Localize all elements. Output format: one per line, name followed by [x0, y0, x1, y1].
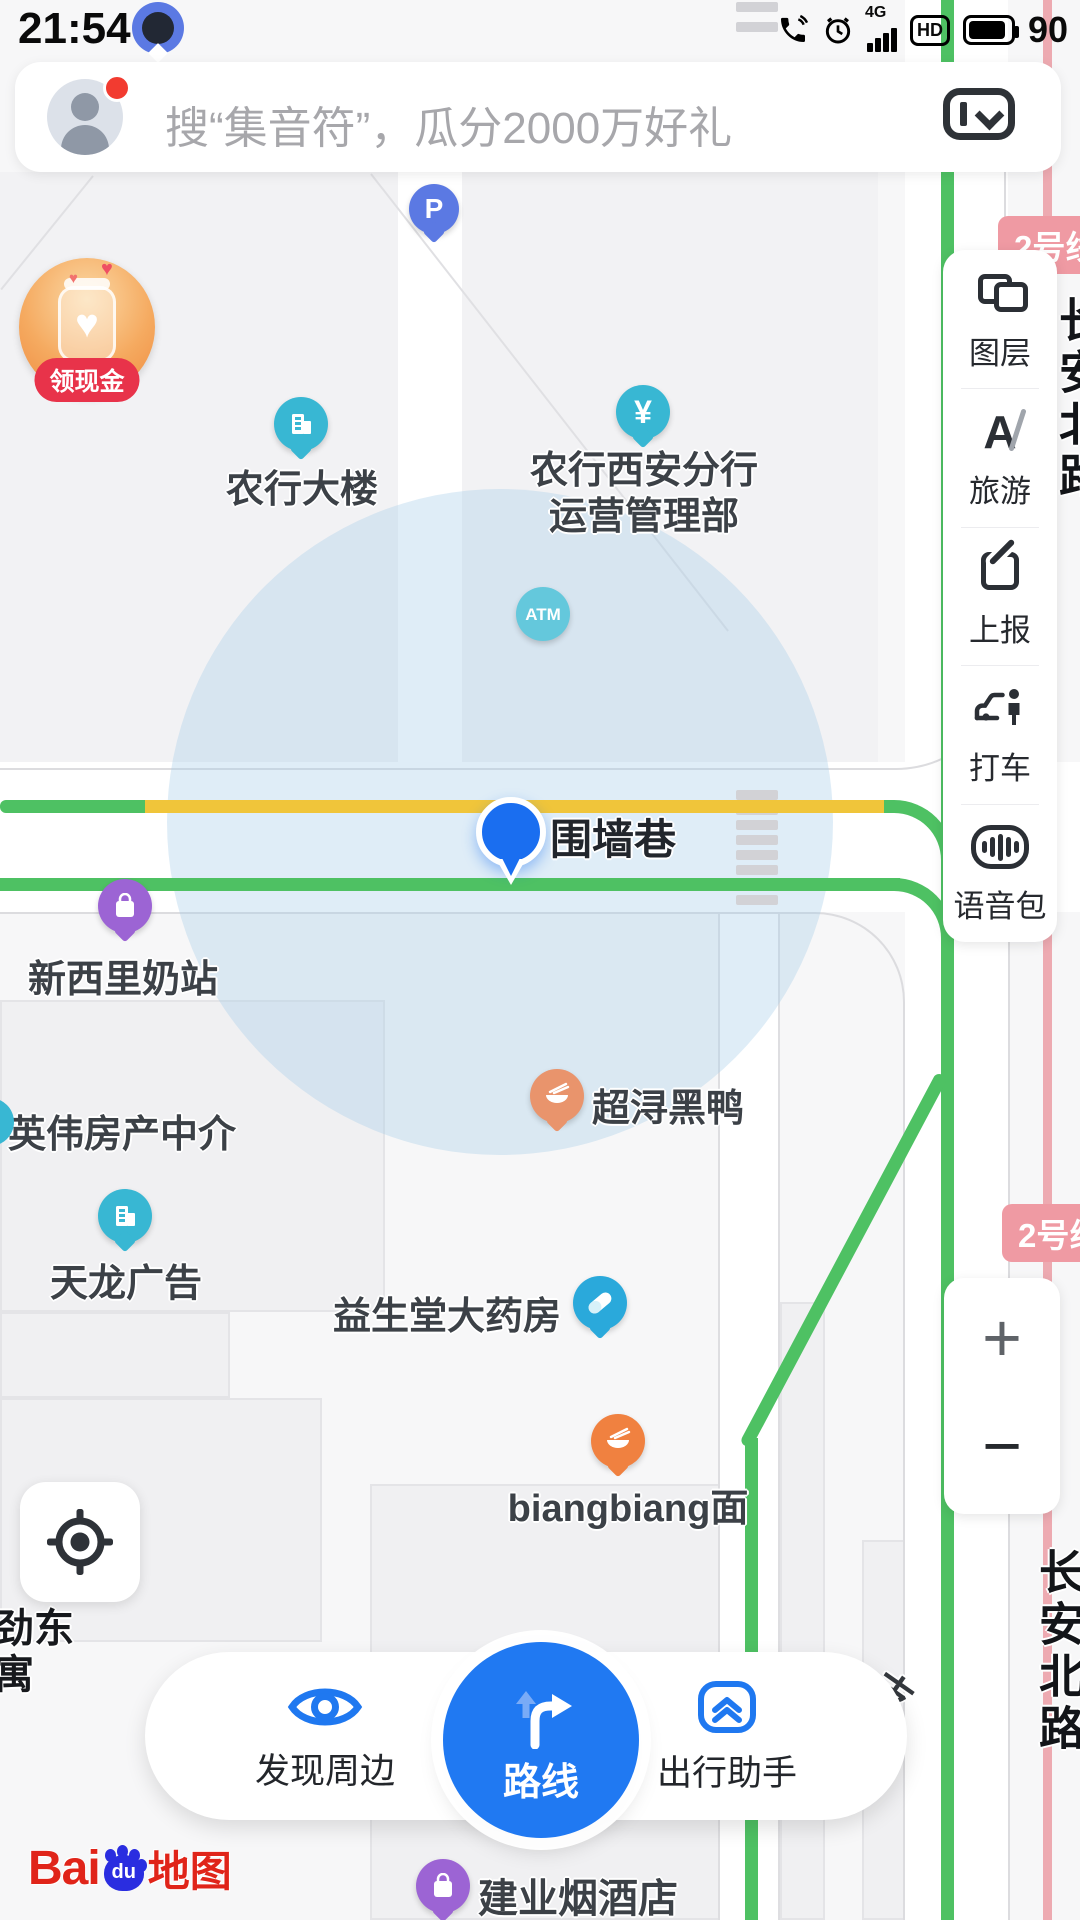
shopping-bag-icon	[113, 893, 137, 919]
toolbar-item-report[interactable]: 上报	[943, 527, 1057, 665]
apartment-line2: 寓	[0, 1653, 34, 1697]
parking-marker[interactable]: P	[409, 184, 459, 234]
noodle-shop-marker[interactable]	[591, 1414, 645, 1468]
pill-icon	[585, 1288, 615, 1318]
alarm-clock-icon	[822, 14, 854, 46]
route-button[interactable]: 路线	[443, 1642, 639, 1838]
building-icon	[112, 1203, 138, 1229]
current-location-pin[interactable]	[476, 797, 546, 867]
zoom-in-button[interactable]: +	[944, 1304, 1060, 1372]
signal-strength-icon: 4G	[867, 8, 897, 52]
baidu-maps-logo: Bai du 地图	[28, 1838, 232, 1899]
metro-line-badge: 2号线	[1002, 1204, 1080, 1262]
milk-station-marker[interactable]	[98, 879, 152, 933]
report-icon	[972, 543, 1028, 599]
baidu-maps-screen: 2号线 2号线 长安北路 长安北路 支 P 农行大楼 ¥ 农行西安分行 运营管理…	[0, 0, 1080, 1920]
network-type-label: 4G	[865, 4, 886, 22]
battery-percent: 90	[1028, 9, 1068, 51]
hd-voice-icon: HD	[910, 15, 950, 46]
battery-icon	[963, 15, 1015, 45]
travel-assistant-label: 出行助手	[657, 1745, 797, 1796]
atm-icon: ATM	[525, 606, 561, 623]
crosswalk-dash	[736, 835, 778, 845]
toolbar-item-layers[interactable]: 图层	[943, 250, 1057, 388]
poi-label-line2: 运营管理部	[549, 496, 739, 538]
call-audio-icon	[777, 14, 809, 46]
locate-me-button[interactable]	[20, 1482, 140, 1602]
map-toolbar: 图层 A 旅游 上报 打车	[943, 250, 1057, 942]
baidu-paw-icon: du	[102, 1847, 146, 1891]
food-bowl-icon	[542, 1082, 572, 1110]
current-road-label: 围墙巷	[550, 806, 676, 867]
road-name-changan-bottom: 长安北路	[1026, 1548, 1080, 1920]
toolbar-label: 打车	[969, 743, 1031, 788]
poi-label[interactable]: 天龙广告	[50, 1252, 202, 1307]
crosswalk-dash	[736, 790, 778, 800]
taxi-icon	[971, 681, 1029, 737]
discover-nearby-button[interactable]: 发现周边	[205, 1652, 445, 1820]
poi-label-apartment: 劲东 寓	[0, 1606, 74, 1698]
pharmacy-marker[interactable]	[573, 1276, 627, 1330]
assistant-icon	[696, 1677, 758, 1737]
duck-shop-marker[interactable]	[530, 1069, 584, 1123]
toolbar-item-travel[interactable]: A 旅游	[943, 388, 1057, 526]
logo-du: du	[111, 1861, 135, 1884]
apartment-line1: 劲东	[0, 1607, 74, 1651]
building-icon	[288, 411, 314, 437]
poi-label[interactable]: 益生堂大药房	[333, 1285, 561, 1340]
zoom-controls: + −	[944, 1278, 1060, 1514]
poi-label[interactable]: biangbiang面	[508, 1477, 749, 1532]
layers-icon	[978, 266, 1022, 322]
bank-branch-marker[interactable]: ¥	[616, 385, 670, 439]
voice-pack-icon	[971, 819, 1029, 875]
toolbar-label: 上报	[969, 605, 1031, 650]
route-label: 路线	[503, 1751, 579, 1806]
notification-dot	[103, 74, 131, 102]
poi-label[interactable]: 建业烟酒店	[478, 1866, 678, 1920]
poi-label-line1: 农行西安分行	[530, 450, 758, 492]
toolbar-label: 旅游	[969, 466, 1031, 511]
bank-building-marker[interactable]	[274, 397, 328, 451]
parking-icon: P	[425, 195, 444, 223]
tobacco-shop-marker[interactable]	[416, 1859, 470, 1913]
crosswalk-dash	[736, 850, 778, 860]
search-input[interactable]: 搜“集音符”，瓜分2000万好礼	[165, 92, 732, 156]
poi-label[interactable]: 农行大楼	[226, 458, 378, 513]
toolbar-item-voice-pack[interactable]: 语音包	[943, 804, 1057, 942]
toolbar-item-taxi[interactable]: 打车	[943, 665, 1057, 803]
crosshair-icon	[45, 1507, 115, 1577]
poi-label[interactable]: 农行西安分行 运营管理部	[530, 448, 758, 540]
crosswalk-dash	[736, 895, 778, 905]
eye-icon	[285, 1679, 365, 1735]
status-bar: 21:54 4G HD 90	[0, 0, 1080, 58]
travel-assistant-button[interactable]: 出行助手	[607, 1652, 847, 1820]
poi-label[interactable]: 新西里奶站	[28, 948, 218, 1003]
cash-promo-button[interactable]: ♥♥♥ 领现金	[19, 258, 155, 396]
crosswalk-dash	[736, 865, 778, 875]
promo-badge: 领现金	[34, 358, 139, 402]
zoom-out-button[interactable]: −	[944, 1412, 1060, 1480]
logo-map-word: 地图	[148, 1838, 232, 1899]
route-arrow-icon	[502, 1675, 580, 1749]
logo-bai: Bai	[28, 1841, 100, 1896]
road-line-green	[0, 800, 152, 813]
poi-label[interactable]: 英伟房产中介	[8, 1103, 236, 1158]
food-bowl-icon	[603, 1427, 633, 1455]
crosswalk-dash	[736, 820, 778, 830]
tianlong-ad-marker[interactable]	[98, 1189, 152, 1243]
clock-time: 21:54	[18, 4, 131, 54]
atm-marker[interactable]: ATM	[516, 587, 570, 641]
toolbar-label: 语音包	[954, 881, 1047, 926]
discover-nearby-label: 发现周边	[255, 1743, 395, 1794]
travel-icon: A	[972, 404, 1028, 460]
shopping-bag-icon	[431, 1873, 455, 1899]
yuan-icon: ¥	[634, 396, 652, 428]
toolbar-label: 图层	[969, 328, 1031, 373]
collapse-search-icon[interactable]	[943, 88, 1015, 140]
poi-label[interactable]: 超浔黑鸭	[592, 1077, 744, 1132]
search-bar[interactable]: 搜“集音符”，瓜分2000万好礼	[15, 62, 1061, 172]
